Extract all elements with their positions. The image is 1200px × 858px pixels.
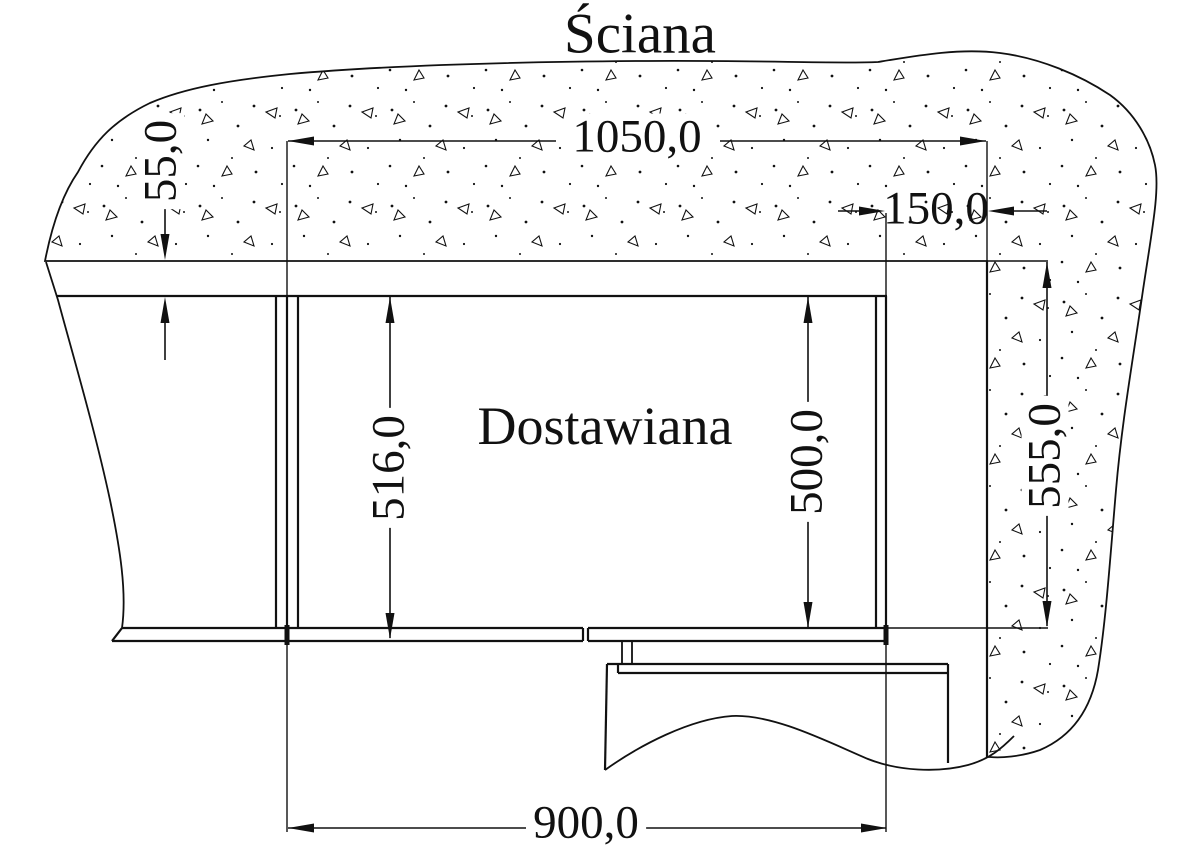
unit-outline: [57, 296, 887, 628]
dim-516-arrow-down: [386, 613, 395, 639]
counter-band: [112, 628, 1048, 641]
dim-55-arrow-up: [161, 297, 170, 323]
bottom-break-line: [605, 716, 1014, 770]
dim-500-value: 500,0: [784, 402, 831, 522]
dim-516-arrow-up: [386, 297, 395, 323]
dim-516-value: 516,0: [366, 408, 413, 528]
dim-55-value: 55,0: [138, 113, 185, 209]
cabinet-left-edge: [605, 664, 607, 770]
dim-500-arrow-down: [804, 602, 813, 628]
dim-150-value: 150,0: [883, 186, 989, 233]
band-left-slant: [112, 628, 122, 641]
dim-900-arrow-right: [861, 824, 887, 833]
left-break-line: [46, 262, 124, 628]
dim-500-arrow-up: [804, 297, 813, 323]
dim-1050-value: 1050,0: [565, 114, 708, 161]
technical-drawing-page: Ściana Dostawiana 1050,0 150,0 55,0 516,…: [0, 0, 1200, 858]
wall-title: Ściana: [564, 6, 716, 63]
break-lines: [46, 262, 1014, 770]
dim-900-value: 900,0: [526, 800, 646, 847]
dim-555-value: 555,0: [1022, 396, 1069, 516]
dim-900-arrow-left: [288, 824, 314, 833]
unit-label: Dostawiana: [478, 399, 733, 453]
lower-cabinet: [605, 641, 948, 770]
